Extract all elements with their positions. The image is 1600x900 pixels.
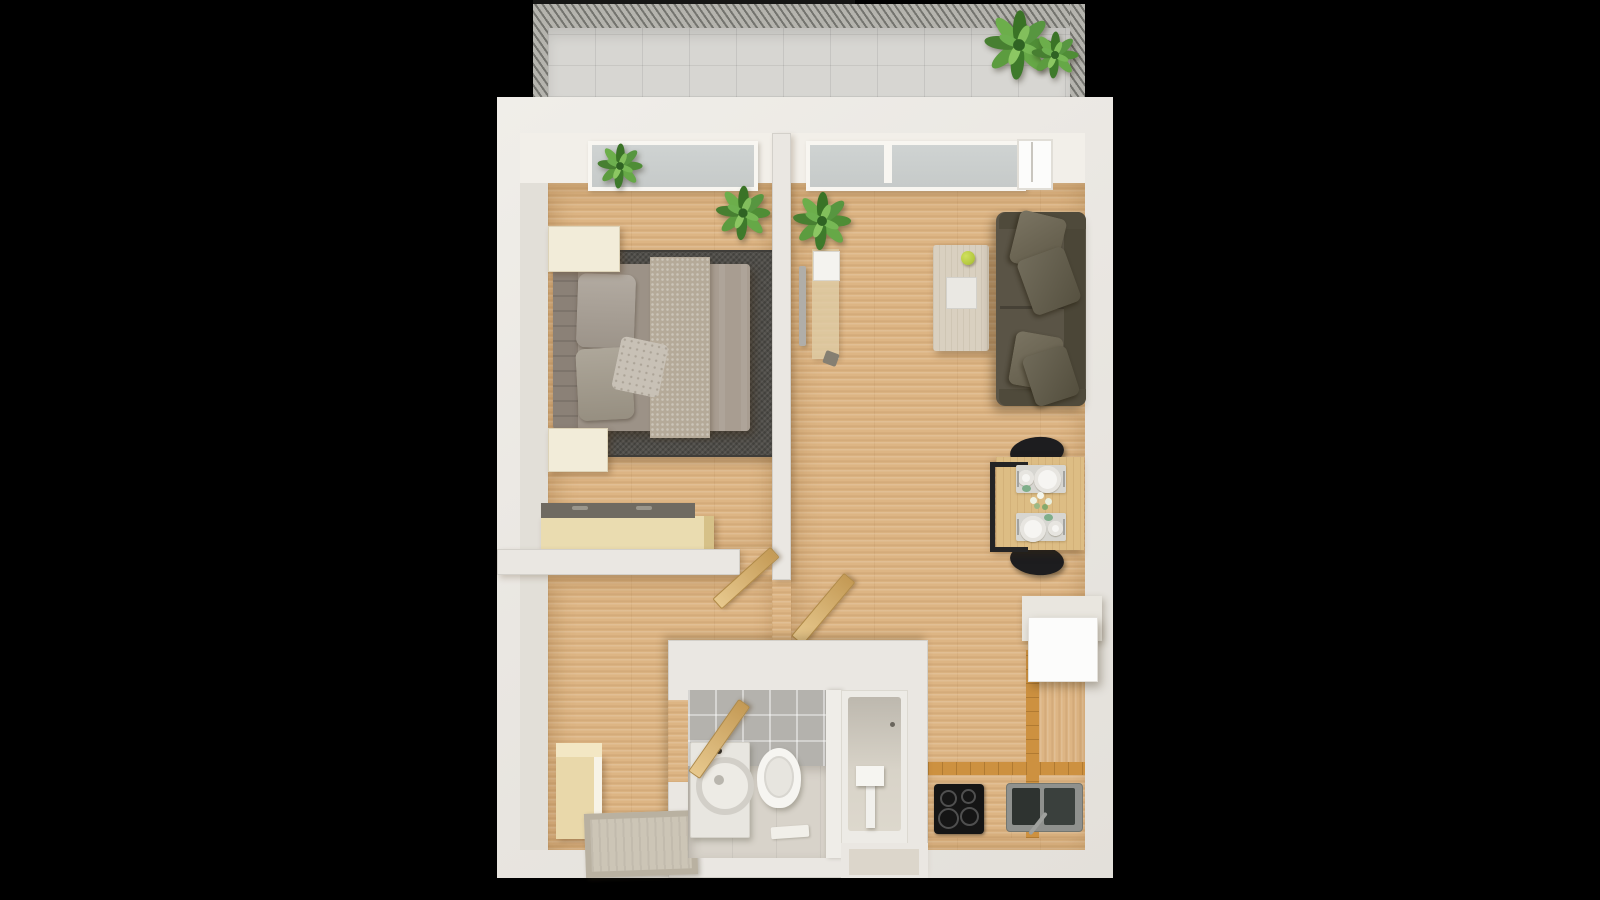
upper-cabinet-front <box>1028 617 1098 682</box>
nightstand-top <box>548 226 620 272</box>
bathtub-drain <box>890 722 895 727</box>
living-window-mullion <box>884 141 892 183</box>
table-frame-bottom <box>990 547 1028 552</box>
doormat <box>584 810 698 878</box>
garnish-bottom <box>1044 514 1053 521</box>
flower-icon <box>1037 492 1044 499</box>
cutlery-top-right <box>1063 471 1065 487</box>
cutlery-top-left <box>1017 471 1019 487</box>
burner-3 <box>938 808 959 829</box>
scene-3d-floor-plan <box>0 0 1600 900</box>
plate-small-bottom <box>1048 521 1063 536</box>
table-frame-left <box>990 462 995 552</box>
flower-icon <box>1034 503 1040 509</box>
bathroom-partition <box>826 690 841 858</box>
tub-faucet-head <box>856 766 884 786</box>
burner-4 <box>960 807 979 826</box>
bed-headboard <box>553 262 580 432</box>
burner-1 <box>940 790 957 807</box>
wall-tv <box>799 266 806 346</box>
flower-icon <box>1042 504 1048 510</box>
plate-small-top <box>1018 470 1034 486</box>
kitchen-counter-bottom-edge <box>928 762 1085 775</box>
cutlery-bottom-right <box>1063 519 1065 535</box>
bathroom-ledge-inner <box>849 849 919 875</box>
bedroom-bottom-wall <box>497 549 740 575</box>
balcony-railing-left <box>533 4 548 97</box>
burner-2 <box>961 789 976 804</box>
windowsill-plant <box>596 142 644 190</box>
toilet-seat <box>764 756 794 798</box>
balcony-door <box>1017 139 1053 190</box>
living-doorway-floor <box>772 580 791 640</box>
chest-top <box>541 503 695 518</box>
center-wall <box>772 133 791 580</box>
left-wall-face <box>520 133 548 850</box>
nightstand-bottom <box>548 428 608 472</box>
coffee-table-tray <box>946 277 977 309</box>
chest-handle-2 <box>636 506 652 510</box>
washer-hub <box>714 775 724 785</box>
media-card <box>813 251 840 281</box>
bedroom-corner-plant <box>714 184 772 242</box>
wardrobe-top <box>556 743 602 757</box>
table-flowers <box>1028 491 1056 513</box>
living-plant <box>791 190 853 252</box>
apple <box>961 251 975 265</box>
bathroom-doorway-floor <box>668 700 688 782</box>
tub-faucet-body <box>866 782 875 828</box>
balcony-door-line <box>1031 142 1033 182</box>
sink-basin-right <box>1044 788 1075 825</box>
chest-handle-1 <box>572 506 588 510</box>
plate-large-bottom <box>1020 516 1046 542</box>
sink-basin-left <box>1012 788 1040 825</box>
balcony-plant-small <box>1030 30 1080 80</box>
plate-large-top <box>1034 466 1061 493</box>
living-window <box>806 141 1026 191</box>
cutlery-bottom-left <box>1017 519 1019 535</box>
